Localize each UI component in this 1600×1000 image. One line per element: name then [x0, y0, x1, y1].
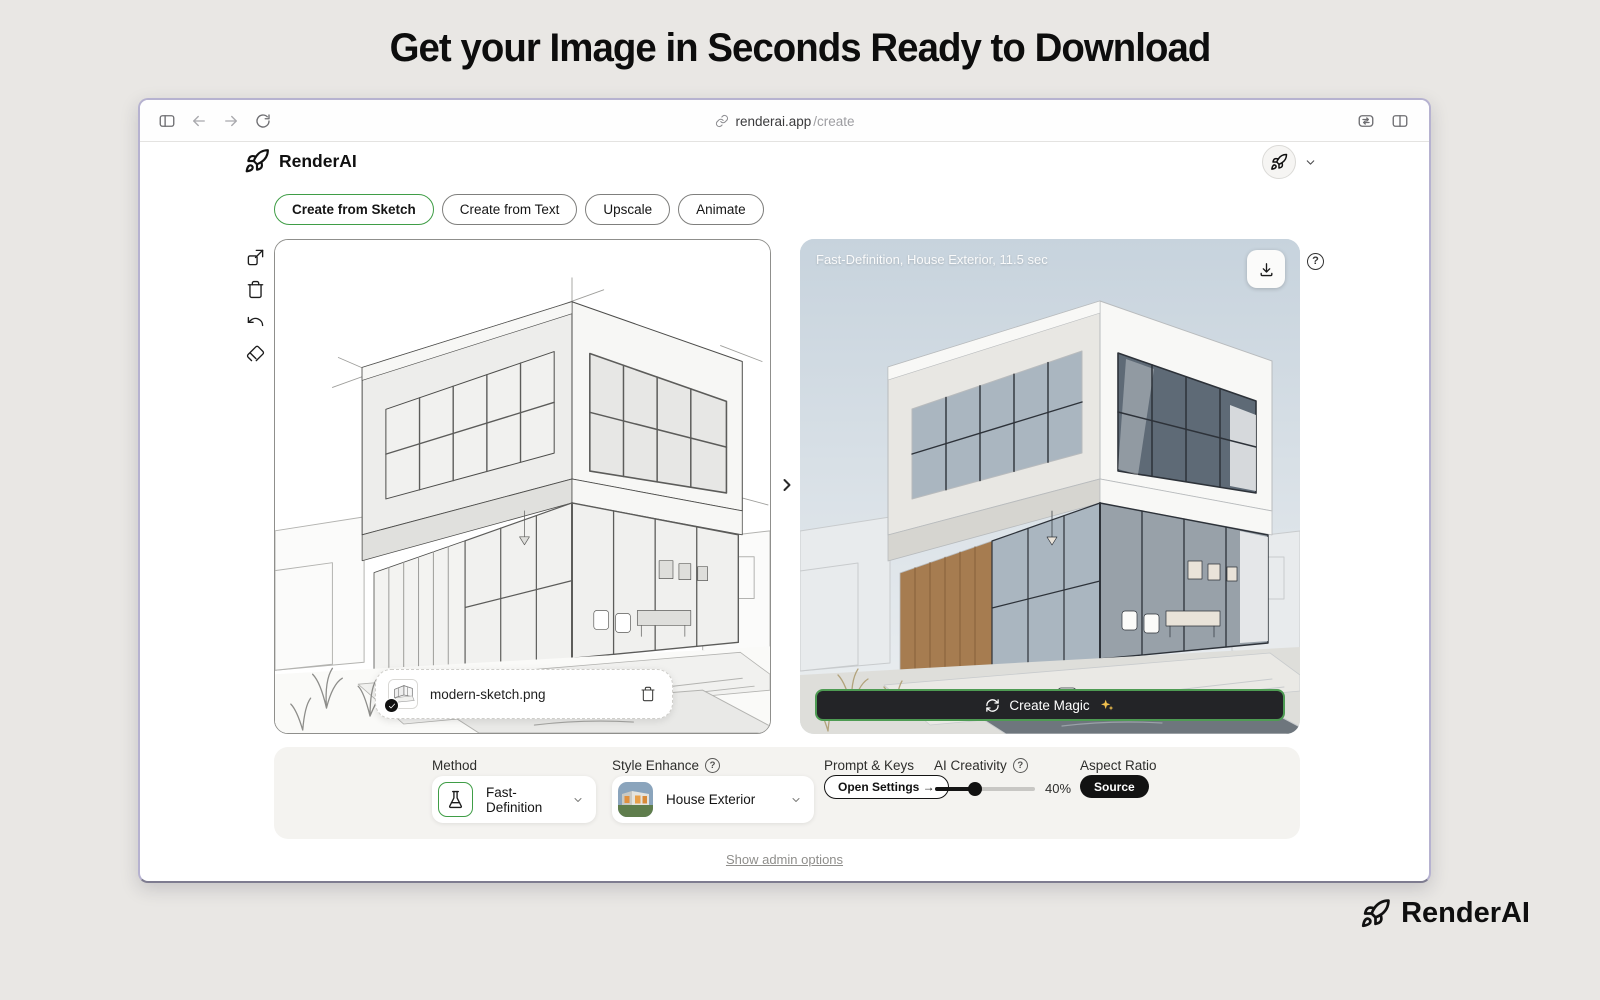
tab-upscale[interactable]: Upscale [585, 194, 670, 225]
chevron-down-icon[interactable] [1304, 156, 1317, 169]
style-help-icon[interactable]: ? [705, 758, 720, 773]
creativity-slider-track[interactable] [935, 787, 1035, 791]
ai-creativity-label: AI Creativity ? [934, 758, 1028, 773]
remove-file-icon[interactable] [640, 686, 656, 702]
footer-brand: RenderAI [1360, 897, 1530, 930]
page-title: Get your Image in Seconds Ready to Downl… [32, 26, 1568, 71]
uploaded-file-chip[interactable]: modern-sketch.png [375, 669, 673, 719]
page-settings-icon[interactable] [1357, 112, 1375, 130]
sketch-canvas[interactable]: modern-sketch.png [274, 239, 771, 734]
trash-icon[interactable] [246, 280, 265, 299]
result-meta-label: Fast-Definition, House Exterior, 11.5 se… [816, 252, 1048, 267]
method-value: Fast-Definition [486, 785, 559, 815]
rocket-icon [244, 148, 270, 174]
avatar-rocket-icon [1270, 153, 1288, 171]
link-icon [714, 114, 728, 128]
browser-toolbar: renderai.app/create [140, 100, 1429, 142]
flask-icon [438, 782, 473, 817]
rendered-image [800, 239, 1300, 734]
canvas-toolbar [246, 248, 265, 363]
forward-icon[interactable] [222, 112, 240, 130]
show-admin-options-link[interactable]: Show admin options [140, 852, 1429, 867]
method-chevron-icon [572, 794, 584, 806]
tab-create-from-text[interactable]: Create from Text [442, 194, 578, 225]
check-badge-icon [384, 698, 399, 713]
eraser-icon[interactable] [246, 344, 265, 363]
create-magic-button[interactable]: Create Magic [815, 689, 1285, 721]
account-menu[interactable] [1262, 145, 1317, 179]
undo-icon[interactable] [246, 312, 265, 331]
aspect-ratio-label: Aspect Ratio [1080, 758, 1157, 773]
url-path: /create [813, 114, 854, 129]
create-magic-label: Create Magic [1009, 698, 1089, 713]
sketch-image [275, 240, 770, 733]
footer-brand-name: RenderAI [1401, 897, 1530, 930]
chevron-right-icon[interactable] [777, 475, 797, 495]
sidebar-toggle-icon[interactable] [158, 112, 176, 130]
export-icon[interactable] [246, 248, 265, 267]
method-dropdown[interactable]: Fast-Definition [432, 776, 596, 823]
prompt-keys-label: Prompt & Keys [824, 758, 914, 773]
file-name: modern-sketch.png [430, 687, 628, 702]
sparkles-icon [1099, 697, 1115, 713]
generation-controls: Method Fast-Definition Style Enhance ? [274, 747, 1300, 839]
open-settings-button[interactable]: Open Settings → [824, 775, 949, 799]
avatar[interactable] [1262, 145, 1296, 179]
footer-rocket-icon [1360, 898, 1391, 929]
refresh-icon [985, 698, 1000, 713]
aspect-ratio-badge[interactable]: Source [1080, 775, 1149, 798]
tab-animate[interactable]: Animate [678, 194, 764, 225]
style-chevron-icon [790, 794, 802, 806]
address-bar[interactable]: renderai.app/create [714, 100, 854, 142]
mode-tabs: Create from Sketch Create from Text Upsc… [274, 194, 764, 225]
creativity-slider-thumb[interactable] [968, 782, 982, 796]
creativity-value: 40% [1045, 781, 1071, 796]
split-view-icon[interactable] [1391, 112, 1409, 130]
style-thumbnail [618, 782, 653, 817]
result-help-icon[interactable]: ? [1307, 253, 1324, 270]
download-button[interactable] [1247, 250, 1285, 288]
url-host: renderai.app [735, 114, 811, 129]
back-icon[interactable] [190, 112, 208, 130]
brand-name: RenderAI [279, 151, 357, 172]
style-enhance-label: Style Enhance ? [612, 758, 720, 773]
app-logo: RenderAI [244, 148, 357, 174]
result-panel: Fast-Definition, House Exterior, 11.5 se… [800, 239, 1300, 734]
browser-window: renderai.app/create RenderAI Create fr [138, 98, 1431, 883]
style-value: House Exterior [666, 792, 777, 807]
reload-icon[interactable] [254, 112, 272, 130]
file-thumbnail [388, 679, 418, 709]
method-label: Method [432, 758, 477, 773]
creativity-help-icon[interactable]: ? [1013, 758, 1028, 773]
style-enhance-dropdown[interactable]: House Exterior [612, 776, 814, 823]
creativity-slider: 40% [935, 781, 1071, 796]
tab-create-from-sketch[interactable]: Create from Sketch [274, 194, 434, 225]
